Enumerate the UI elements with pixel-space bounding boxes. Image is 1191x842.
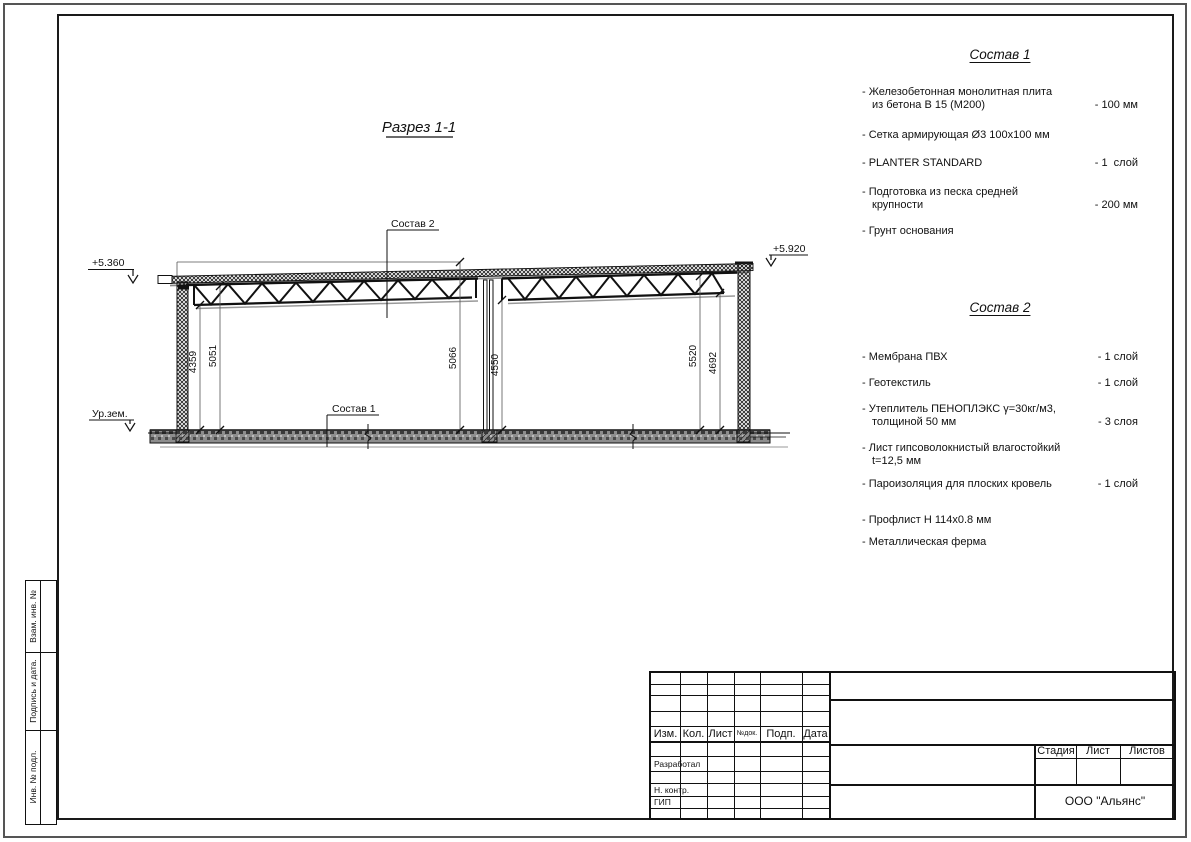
item-value: - 3 слоя [1092,416,1138,429]
down-arrow-icon [125,423,135,431]
svg-text:+5.360: +5.360 [92,257,125,269]
footing-middle [482,430,497,442]
tb-sheets-header: Листов [1120,744,1174,758]
item-text: - Лист гипсоволокнистый влагостойкий t=1… [862,442,1132,468]
item-text: - Металлическая ферма [862,536,1132,549]
item-value: - 200 мм [1089,199,1138,212]
item-value: - 1 слой [1092,377,1138,390]
elevation-mark-left: +5.360 [88,257,138,283]
item-text: - PLANTER STANDARD [862,157,1089,170]
sostav1-list: Состав 1 - Железобетонная монолитная пли… [862,47,1138,238]
item-text: - Подготовка из песка средней крупности [862,186,1089,212]
tb-row-nkontr: Н. контр. [651,783,710,796]
dim-value: 4550 [490,353,501,376]
tb-row-gip: ГИП [651,796,710,808]
tb-stage-header: Стадия [1036,744,1076,758]
truss-right-bay [502,273,737,304]
stamp-vzam-inv: Взам. инв. № [26,581,40,652]
sostav1-heading: Состав 1 [862,47,1138,64]
list-item: - Профлист Н 114х0.8 мм [862,514,1138,527]
list-item: - Геотекстиль - 1 слой [862,377,1138,390]
footing-right [737,430,750,442]
item-value: - 1 слой [1092,351,1138,364]
dimension-4359: 4359 [188,301,204,434]
item-value: - 1 слой [1089,157,1138,170]
item-value: - 100 мм [1089,99,1138,112]
list-item: - PLANTER STANDARD - 1 слой [862,157,1138,170]
dimension-5520: 5520 [688,272,704,434]
left-margin-stamp: Взам. инв. № Подпись и дата. Инв. № подл… [25,580,57,825]
tb-col-data: Дата [802,726,829,741]
ground-level-mark: Ур.зем. [89,408,135,431]
item-text: - Мембрана ПВХ [862,351,1092,364]
tb-company: ООО "Альянс" [1036,784,1174,818]
tb-col-podp: Подп. [760,726,802,741]
svg-text:+5.920: +5.920 [773,243,806,255]
svg-text:Состав 1: Состав 1 [332,403,376,415]
list-item: - Лист гипсоволокнистый влагостойкий t=1… [862,442,1138,468]
svg-text:Ур.зем.: Ур.зем. [92,408,128,420]
footing-left [176,430,189,442]
item-text: - Профлист Н 114х0.8 мм [862,514,1132,527]
section-drawing: Разрез 1-1 [60,90,850,480]
drawing-sheet: { "drawing": { "section_title": "Разрез … [0,0,1191,842]
dim-value: 5520 [688,344,699,367]
item-value: - 1 слой [1092,478,1138,491]
truss-left-bay [186,279,478,309]
section-title: Разрез 1-1 [382,119,456,136]
stamp-podpis-data: Подпись и дата. [26,652,40,730]
tb-col-kol: Кол. [680,726,707,741]
tb-col-izm: Изм. [651,726,680,741]
item-text: - Железобетонная монолитная плита из бет… [862,86,1089,112]
roof-edge-cap [158,276,172,284]
dimension-4692: 4692 [708,289,724,434]
elevation-mark-right: +5.920 [766,243,808,266]
list-item: - Подготовка из песка средней крупности … [862,186,1138,212]
item-text: - Пароизоляция для плоских кровель [862,478,1092,491]
svg-text:Состав 2: Состав 2 [391,218,435,230]
list-item: - Железобетонная монолитная плита из бет… [862,86,1138,112]
title-block: Изм. Кол. Лист №док. Подп. Дата Разработ… [649,671,1176,820]
down-arrow-icon [128,275,138,283]
list-item: - Сетка армирующая Ø3 100х100 мм [862,129,1138,142]
tb-col-ndok: №док. [734,726,760,741]
item-text: - Утеплитель ПЕНОПЛЭКС γ=30кг/м3, толщин… [862,403,1092,429]
floor-slab [148,424,790,449]
tb-col-list: Лист [707,726,734,741]
sostav2-list: Состав 2 - Мембрана ПВХ - 1 слой - Геоте… [862,300,1138,549]
item-text: - Грунт основания [862,225,1132,238]
tb-sheet-header: Лист [1076,744,1120,758]
dim-value: 4692 [708,351,719,374]
stamp-inv-podl: Инв. № подл. [26,730,40,824]
list-item: - Пароизоляция для плоских кровель - 1 с… [862,478,1138,491]
item-text: - Геотекстиль [862,377,1092,390]
right-wall-parapet [735,263,753,431]
dim-value: 4359 [188,350,199,373]
dim-value: 5051 [208,344,219,367]
list-item: - Грунт основания [862,225,1138,238]
item-text: - Сетка армирующая Ø3 100х100 мм [862,129,1132,142]
list-item: - Металлическая ферма [862,536,1138,549]
list-item: - Утеплитель ПЕНОПЛЭКС γ=30кг/м3, толщин… [862,403,1138,429]
tb-row-razrabotal: Разработал [651,756,710,771]
list-item: - Мембрана ПВХ - 1 слой [862,351,1138,364]
dim-value: 5066 [448,346,459,369]
sostav2-heading: Состав 2 [862,300,1138,317]
